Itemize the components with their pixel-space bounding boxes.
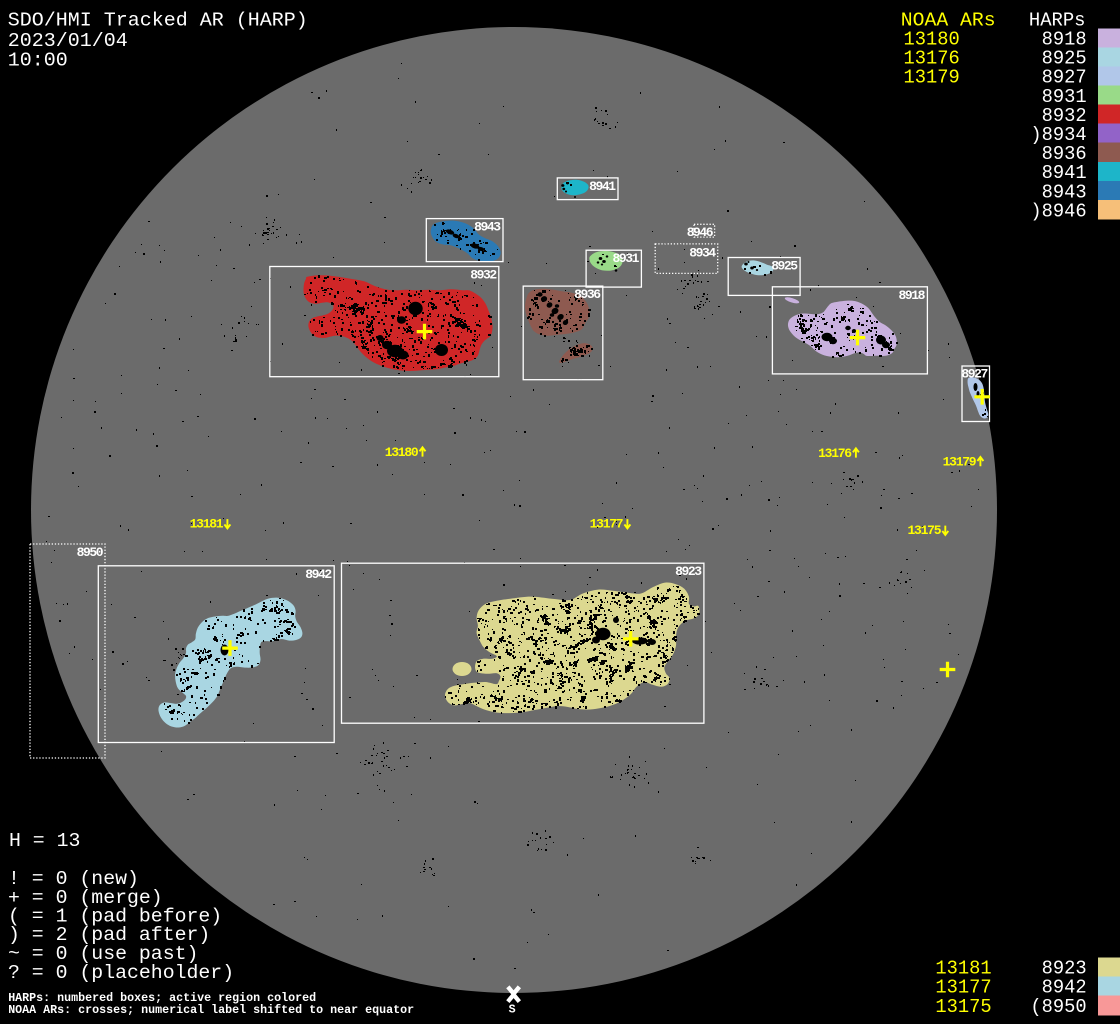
svg-text:8918: 8918 (899, 288, 926, 303)
svg-text:8936: 8936 (574, 287, 601, 302)
svg-text:8950: 8950 (77, 545, 104, 560)
svg-text:? = 0 (placeholder): ? = 0 (placeholder) (8, 962, 234, 984)
svg-text:13176: 13176 (818, 446, 852, 461)
svg-text:H = 13: H = 13 (9, 830, 80, 852)
svg-text:13177: 13177 (590, 517, 624, 532)
svg-text:13180: 13180 (385, 445, 419, 460)
svg-text:13175: 13175 (935, 996, 991, 1018)
svg-text:8927: 8927 (961, 367, 988, 382)
svg-text:8941: 8941 (589, 179, 616, 194)
svg-text:(8950: (8950 (1030, 996, 1086, 1018)
svg-text:2023/01/04: 2023/01/04 (8, 30, 128, 52)
svg-text:SDO/HMI Tracked AR (HARP): SDO/HMI Tracked AR (HARP) (8, 10, 308, 32)
svg-text:13175: 13175 (908, 523, 942, 538)
svg-text:S: S (509, 1003, 516, 1017)
svg-text:13181: 13181 (190, 517, 224, 532)
svg-text:8943: 8943 (474, 220, 501, 235)
svg-text:8942: 8942 (305, 567, 332, 582)
svg-text:8932: 8932 (470, 268, 497, 283)
svg-text:NOAA ARs: crosses; numerical l: NOAA ARs: crosses; numerical label shift… (8, 1003, 414, 1017)
svg-text:8934: 8934 (689, 245, 716, 260)
svg-text:10:00: 10:00 (8, 50, 68, 72)
svg-text:8925: 8925 (771, 259, 798, 274)
svg-text:13179: 13179 (904, 67, 960, 89)
svg-text:8931: 8931 (613, 251, 640, 266)
svg-text:8923: 8923 (675, 564, 702, 579)
svg-text:8946: 8946 (687, 225, 714, 240)
svg-text:)8946: )8946 (1030, 200, 1086, 222)
svg-text:13179: 13179 (943, 455, 977, 470)
